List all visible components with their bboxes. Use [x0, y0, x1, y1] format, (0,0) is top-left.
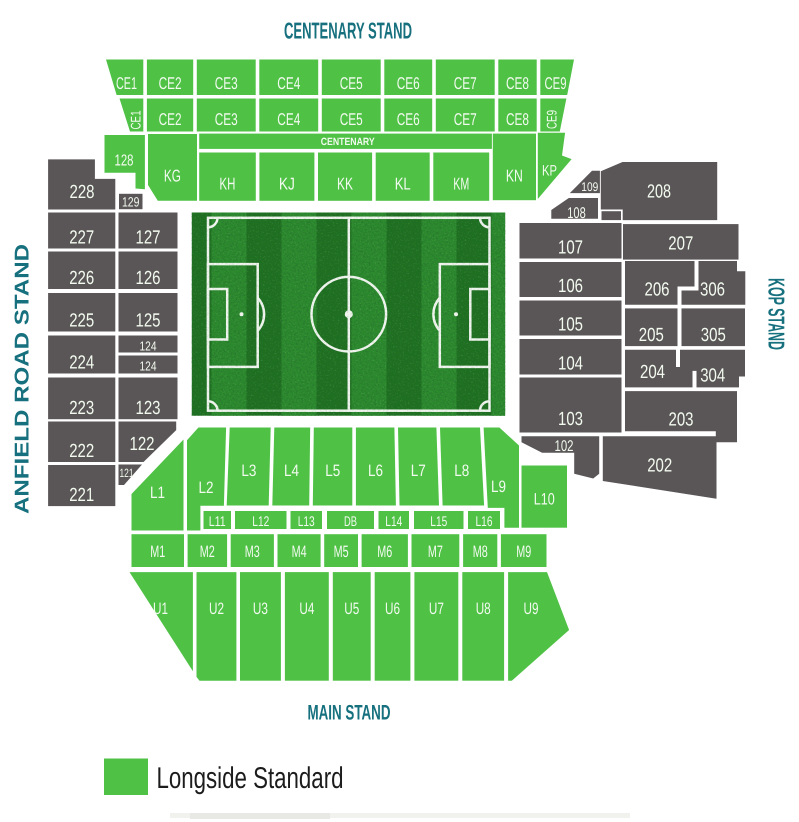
svg-text:L1: L1 [150, 484, 165, 502]
svg-text:121: 121 [120, 466, 134, 480]
svg-text:KOP STAND: KOP STAND [763, 278, 789, 350]
svg-text:M6: M6 [377, 543, 392, 561]
svg-text:CE9: CE9 [545, 74, 567, 93]
svg-text:124: 124 [140, 339, 157, 354]
svg-text:304: 304 [700, 365, 725, 386]
svg-text:223: 223 [69, 398, 94, 419]
svg-text:L5: L5 [325, 462, 340, 480]
svg-text:L9: L9 [491, 478, 506, 496]
svg-text:U1: U1 [153, 600, 168, 618]
svg-text:CENTENARY: CENTENARY [321, 136, 375, 148]
svg-text:128: 128 [115, 152, 134, 169]
svg-text:DB: DB [344, 513, 357, 529]
svg-text:CE6: CE6 [397, 110, 420, 129]
svg-text:206: 206 [645, 279, 670, 300]
svg-text:CE4: CE4 [277, 110, 300, 129]
svg-text:L8: L8 [454, 462, 469, 480]
svg-text:ANFIELD ROAD STAND: ANFIELD ROAD STAND [11, 244, 33, 514]
svg-text:CE3: CE3 [215, 110, 238, 129]
svg-text:127: 127 [136, 227, 161, 248]
svg-text:U8: U8 [476, 600, 491, 618]
svg-text:L16: L16 [476, 513, 493, 529]
svg-text:U7: U7 [429, 600, 444, 618]
svg-text:CE9: CE9 [544, 110, 560, 129]
svg-text:305: 305 [701, 325, 726, 346]
svg-text:M8: M8 [473, 543, 488, 561]
svg-text:CE3: CE3 [215, 74, 238, 93]
svg-text:CE6: CE6 [397, 74, 420, 93]
svg-text:L14: L14 [385, 513, 402, 529]
svg-text:U6: U6 [385, 600, 400, 618]
svg-text:L10: L10 [534, 490, 555, 508]
svg-text:U9: U9 [524, 600, 539, 618]
svg-text:M5: M5 [334, 543, 349, 561]
svg-text:L4: L4 [284, 462, 299, 480]
svg-text:204: 204 [640, 362, 665, 383]
svg-text:124: 124 [140, 359, 157, 374]
svg-text:L11: L11 [209, 513, 226, 529]
svg-text:KH: KH [219, 174, 235, 193]
svg-text:CE2: CE2 [159, 74, 182, 93]
svg-text:MAIN STAND: MAIN STAND [308, 702, 391, 725]
svg-text:U5: U5 [344, 600, 359, 618]
svg-text:L2: L2 [199, 479, 214, 497]
svg-text:205: 205 [639, 325, 664, 346]
svg-text:226: 226 [69, 268, 94, 289]
svg-text:L6: L6 [368, 462, 383, 480]
svg-text:103: 103 [558, 409, 583, 430]
svg-text:108: 108 [567, 205, 586, 222]
svg-text:KJ: KJ [279, 174, 295, 193]
svg-text:126: 126 [136, 268, 161, 289]
svg-text:CE2: CE2 [159, 110, 182, 129]
svg-text:L12: L12 [252, 513, 269, 529]
svg-text:M9: M9 [516, 543, 531, 561]
svg-text:CE7: CE7 [454, 74, 477, 93]
svg-text:CE4: CE4 [277, 74, 300, 93]
svg-text:106: 106 [558, 276, 583, 297]
svg-text:123: 123 [136, 398, 161, 419]
svg-text:CE5: CE5 [340, 74, 363, 93]
svg-text:125: 125 [136, 310, 161, 331]
svg-text:KG: KG [164, 167, 181, 186]
svg-text:104: 104 [558, 353, 583, 374]
svg-text:CE8: CE8 [506, 110, 529, 129]
svg-text:KP: KP [542, 162, 557, 179]
svg-text:Longside Standard: Longside Standard [157, 762, 344, 795]
svg-text:129: 129 [122, 195, 140, 210]
svg-text:M2: M2 [200, 543, 215, 561]
svg-text:L3: L3 [241, 462, 256, 480]
svg-text:U3: U3 [253, 600, 268, 618]
svg-text:CE1: CE1 [128, 110, 144, 129]
svg-text:M4: M4 [292, 543, 307, 561]
svg-text:CE1: CE1 [116, 74, 137, 93]
svg-text:M1: M1 [150, 543, 165, 561]
svg-text:203: 203 [669, 409, 694, 430]
svg-text:M3: M3 [245, 543, 260, 561]
svg-text:M7: M7 [428, 543, 443, 561]
svg-text:CE8: CE8 [506, 74, 529, 93]
svg-text:107: 107 [558, 237, 583, 258]
svg-text:L7: L7 [411, 462, 426, 480]
svg-text:CE7: CE7 [454, 110, 477, 129]
svg-text:CENTENARY STAND: CENTENARY STAND [284, 17, 412, 43]
svg-text:221: 221 [69, 485, 94, 506]
svg-text:U4: U4 [299, 600, 314, 618]
svg-text:KL: KL [395, 174, 411, 193]
svg-text:122: 122 [130, 434, 155, 455]
svg-text:KM: KM [453, 174, 469, 193]
svg-text:L13: L13 [298, 513, 315, 529]
svg-text:U2: U2 [209, 600, 224, 618]
svg-text:102: 102 [555, 438, 574, 455]
svg-text:L15: L15 [430, 513, 447, 529]
svg-text:KN: KN [506, 167, 523, 186]
svg-text:105: 105 [558, 314, 583, 335]
svg-text:KK: KK [337, 174, 353, 193]
svg-text:222: 222 [69, 441, 94, 462]
svg-text:224: 224 [69, 352, 94, 373]
svg-text:225: 225 [69, 310, 94, 331]
svg-text:208: 208 [647, 181, 671, 202]
svg-text:CE5: CE5 [340, 110, 363, 129]
svg-text:207: 207 [668, 233, 693, 254]
svg-text:228: 228 [70, 182, 95, 203]
svg-text:109: 109 [581, 180, 598, 194]
svg-text:227: 227 [69, 227, 94, 248]
svg-text:306: 306 [700, 279, 725, 300]
svg-text:202: 202 [647, 455, 672, 476]
